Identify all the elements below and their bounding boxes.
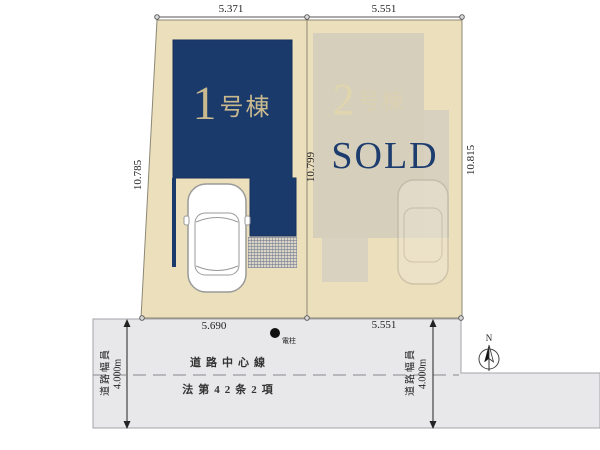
lot1-top-dimension: 5.371 [219,3,244,15]
lot2-sold-badge: SOLD [331,134,438,178]
site-plan: 5.371 5.551 10.785 10.799 10.815 1 号棟 2 … [0,0,600,450]
road-width-value-right: 4.000m [418,359,429,389]
lot2-depth-right-dimension: 10.815 [465,145,477,175]
lot2-label: 2 号棟 [332,78,405,122]
utility-pole-label: 電柱 [282,336,296,346]
north-compass-icon [479,345,499,371]
road-area [93,319,600,428]
building1-side-wall [172,178,176,267]
utility-pole-icon [270,328,280,338]
road-law-label: 法第42条2項 [182,381,278,397]
site-plan-drawing [0,0,600,450]
entrance-steps-hatch [248,237,297,268]
lot2-suffix: 号棟 [357,84,405,116]
road-width-value-left: 4.000m [113,359,124,389]
ghost-car-icon [398,180,448,284]
road-width-label-left: 道路幅員 [97,348,112,396]
road-center-line-label: 道路中心線 [190,354,270,370]
lot1-frontage-dimension: 5.690 [202,320,227,332]
lot1-number: 1 [193,80,217,128]
lot1-suffix: 号棟 [220,87,272,122]
lot1-label: 1 号棟 [193,80,272,128]
car-icon [184,184,250,292]
lot2-top-dimension: 5.551 [372,3,397,15]
compass-north-label: N [486,333,493,343]
road-width-label-right: 道路幅員 [402,348,417,396]
lot1-depth-right-dimension: 10.799 [305,152,317,182]
lot1-depth-left-dimension: 10.785 [132,160,144,190]
lot2-number: 2 [332,78,354,122]
lot2-frontage-dimension: 5.551 [372,319,397,331]
